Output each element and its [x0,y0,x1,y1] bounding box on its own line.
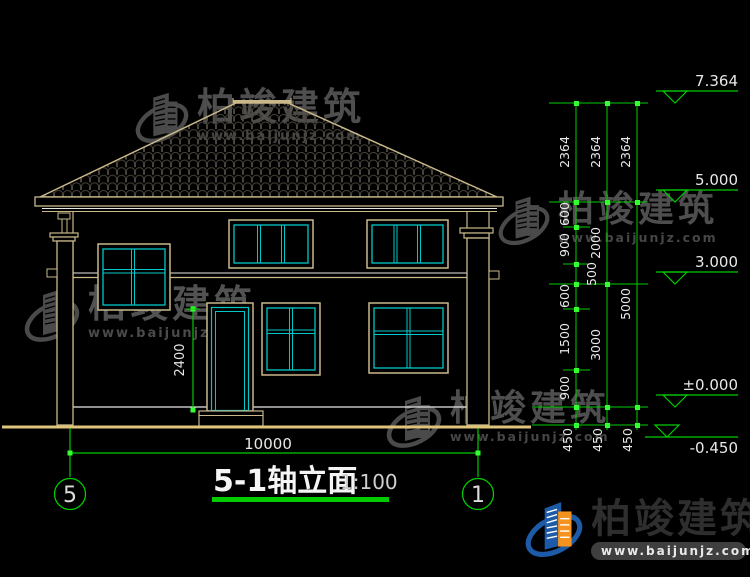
axis-number-left: 5 [63,483,77,508]
dim-inner-900b: 900 [557,376,572,400]
left-column [47,213,78,425]
elevation-values: 7.364 5.000 3.000 ±0.000 -0.450 [682,72,738,457]
elev-ridge: 7.364 [695,72,738,90]
dim-inner-600b: 600 [557,284,572,308]
eave-fascia [35,197,503,212]
axis-number-right: 1 [471,483,485,508]
dimension-labels: 2364 2364 2364 600 900 500 600 1500 900 … [557,136,635,452]
dim-base-450b: 450 [590,428,605,452]
dim-label-width: 10000 [244,435,292,453]
door-height-dimension: 2400 [173,306,200,413]
dim-inner-1500: 1500 [557,323,572,355]
entry-door [207,303,253,411]
lower-window-left [262,303,320,375]
dim-base-450c: 450 [620,428,635,452]
stair-window [98,244,170,310]
drawing-title: 5-1轴立面 [213,464,357,499]
elev-ground: ±0.000 [682,376,738,394]
lower-window-right [369,303,448,373]
elevation-drawing: 2400 2364 [0,0,750,577]
hip-roof [40,98,497,197]
dim-middle-2000: 2000 [588,227,603,259]
door-step [199,411,263,426]
axis-bubble-left: 5 [55,479,86,510]
elev-eave: 5.000 [695,171,738,189]
dim-roof-1: 2364 [557,136,572,168]
drawing-scale: 1:100 [340,470,398,494]
upper-window-middle [229,220,313,268]
dim-inner-500: 500 [584,262,599,286]
dim-inner-900a: 900 [557,233,572,257]
title-block: 5-1轴立面 1:100 [212,464,398,502]
elev-grade: -0.450 [690,439,738,457]
dim-base-450a: 450 [560,428,575,452]
elev-floor2: 3.000 [695,253,738,271]
cad-elevation-screenshot: 柏竣建筑 www.baijunjz.com 柏竣建筑 www.baijunjz.… [0,0,750,577]
dim-outer-5000: 5000 [618,288,633,320]
dim-label-door: 2400 [173,343,188,376]
upper-window-right [367,220,448,268]
title-underline [212,497,389,502]
dim-middle-3000: 3000 [588,329,603,361]
axis-bubble-right: 1 [463,479,494,510]
dim-inner-600a: 600 [557,202,572,226]
dim-roof-3: 2364 [618,136,633,168]
dim-roof-2: 2364 [588,136,603,168]
right-pilaster [460,228,499,425]
